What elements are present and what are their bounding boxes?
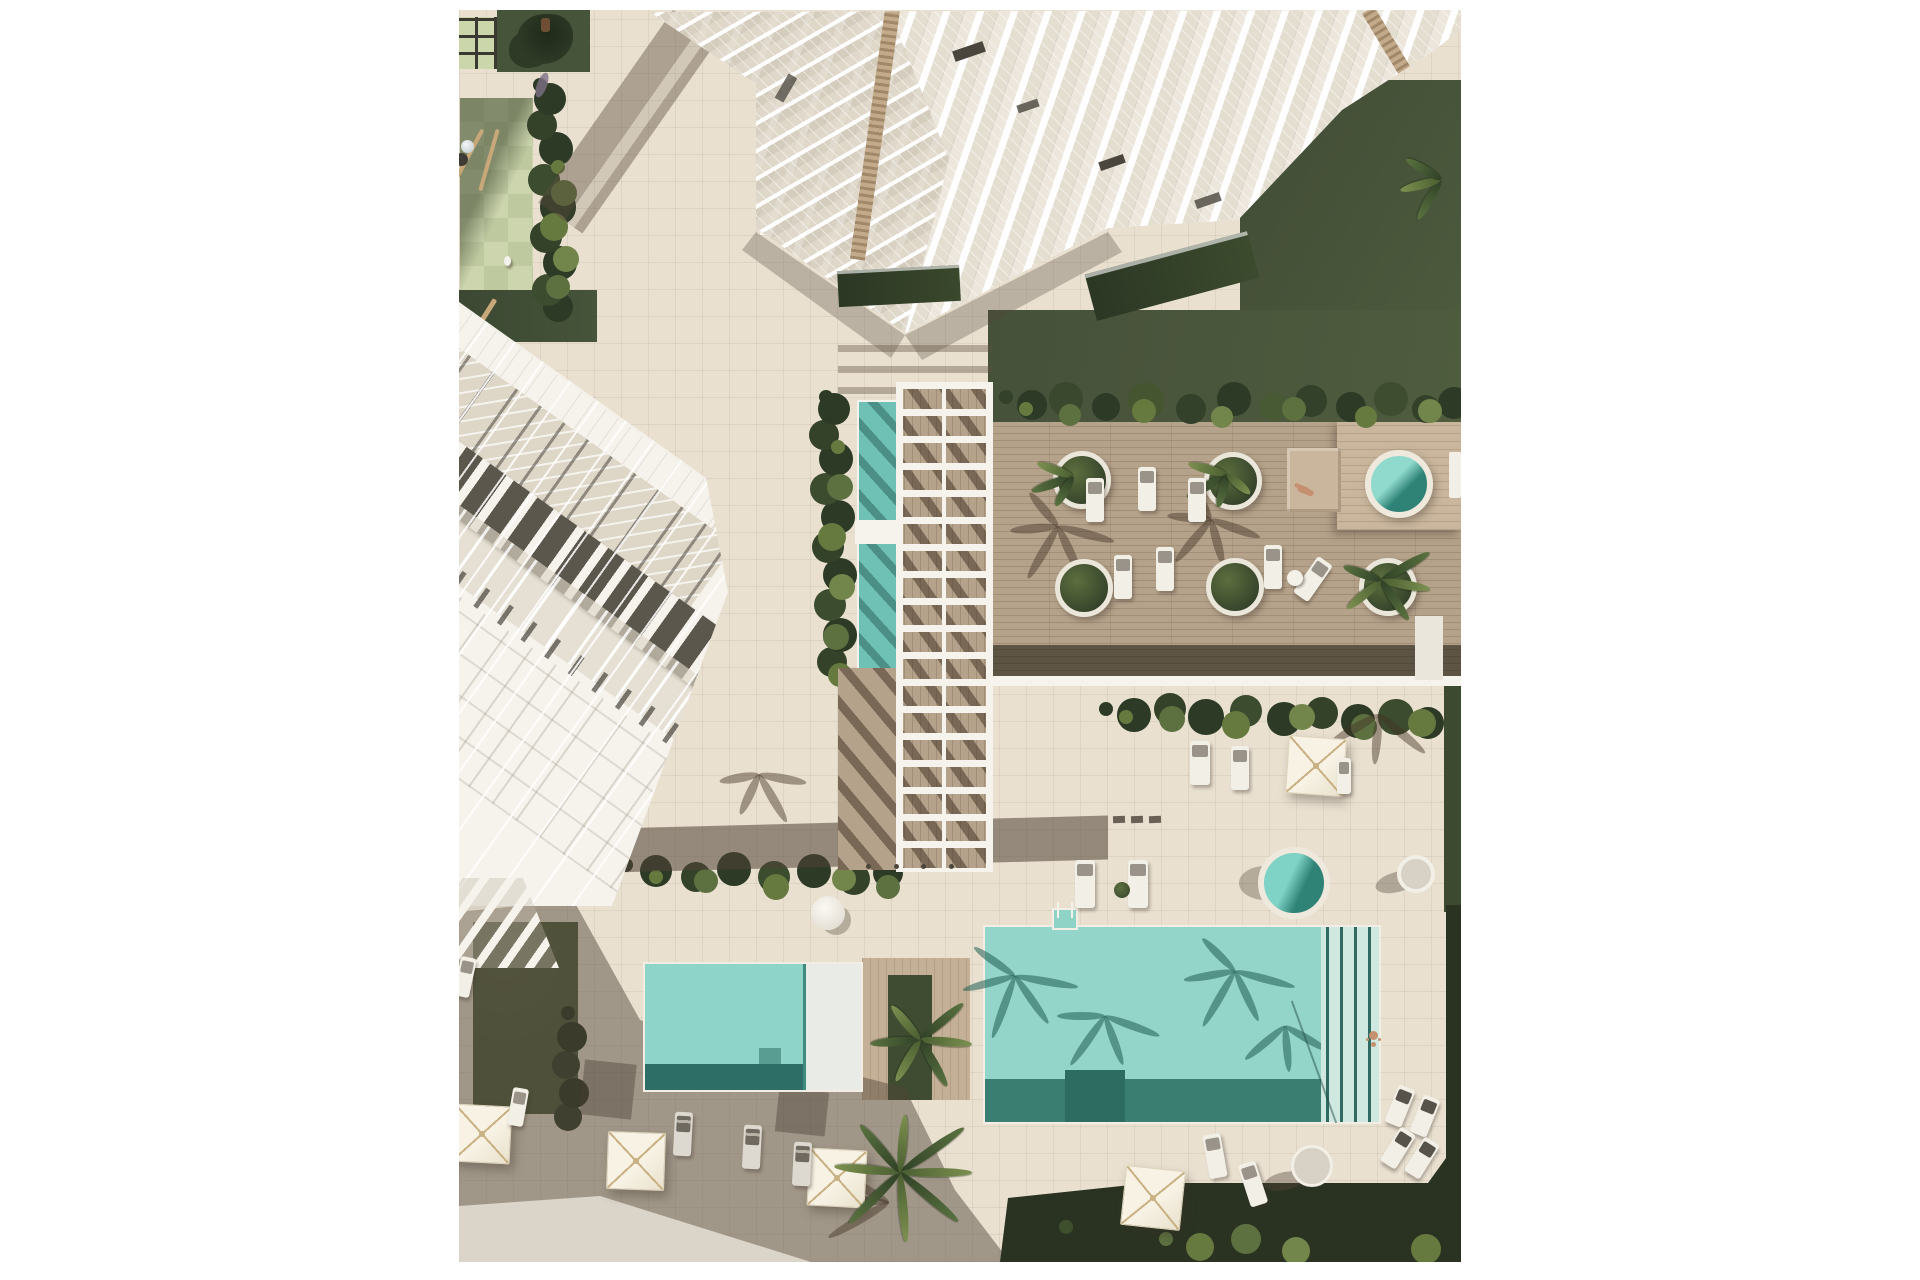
planter-3 <box>1055 559 1113 617</box>
egg-chair <box>1397 855 1435 893</box>
pool-lane-shelf <box>1321 927 1379 1122</box>
deck-side-table <box>1287 570 1303 586</box>
deck-shade-band <box>988 645 1461 678</box>
bottom-lounger-1 <box>673 1112 693 1157</box>
lap-pool-bridge <box>855 520 900 544</box>
tower-planter-bed-1 <box>837 265 961 307</box>
planter-4 <box>1206 558 1264 616</box>
lawn-hedge-leaves <box>1019 402 1033 416</box>
deck-lounger-3 <box>1188 478 1206 522</box>
playground-tree-trunk <box>541 18 550 32</box>
plant-band-monstera <box>1159 1232 1173 1246</box>
round-table <box>811 896 845 930</box>
plant-band-leaves <box>1059 1220 1073 1234</box>
umbrella-bottom-1 <box>606 1131 666 1191</box>
hedge-midstrip-row <box>1099 702 1113 716</box>
deck-lounger-4 <box>1114 555 1132 599</box>
pergola-wood-strip <box>838 668 896 870</box>
mid-lounger-3 <box>1337 758 1351 794</box>
bottom-lounger-2 <box>742 1125 762 1170</box>
lane-line-2 <box>1340 927 1343 1122</box>
poolside-lounger-1 <box>1075 860 1095 908</box>
deck-lounger-2 <box>1138 467 1156 511</box>
poolside-plant <box>1114 882 1130 898</box>
spa-steps <box>1287 448 1341 512</box>
path-bollard-4 <box>949 864 954 869</box>
path-bollard-3 <box>921 864 926 869</box>
umbrella-bottom-3 <box>1120 1165 1186 1231</box>
path-bollard-2 <box>894 864 899 869</box>
swimmer <box>1369 1031 1378 1040</box>
hedge-lappool-leaves <box>831 440 845 454</box>
deck-lounger-6 <box>1264 545 1282 589</box>
toy-figure <box>504 256 511 266</box>
lawn-hedge-row <box>999 390 1013 404</box>
townhouse-fins <box>459 302 749 916</box>
kids-pool <box>643 962 863 1092</box>
step-stone-2 <box>1131 816 1143 823</box>
deck-lounger-1 <box>1086 478 1104 522</box>
corner-lounger-2 <box>1409 1094 1441 1138</box>
lawn-deck-band <box>988 310 1461 422</box>
deck-white-path <box>1415 616 1443 680</box>
site-plan-scene <box>459 10 1461 1262</box>
main-pool <box>983 925 1381 1124</box>
umbrella-shadow-2 <box>775 1088 829 1137</box>
playground-pavilion <box>459 17 502 69</box>
round-chair <box>1291 1145 1333 1187</box>
deck-spa <box>1365 450 1433 518</box>
pergola-rail-right <box>986 382 993 872</box>
pergola-rail-center <box>942 382 946 872</box>
play-dome <box>461 140 474 153</box>
pergola-rail-left <box>896 382 903 872</box>
lane-line-4 <box>1368 927 1371 1122</box>
lane-line-3 <box>1354 927 1357 1122</box>
bottom-lounger-4 <box>1202 1133 1227 1179</box>
mid-lounger-2 <box>1231 746 1249 790</box>
grass-strip-right <box>1444 686 1461 912</box>
pool-steps-block <box>1065 1070 1125 1122</box>
bottom-lounger-3 <box>792 1142 812 1187</box>
pergola <box>896 382 993 872</box>
hedge-building-leaves <box>649 870 663 884</box>
mid-lounger-1 <box>1190 741 1210 785</box>
umbrella-shadow-1 <box>579 1059 636 1119</box>
hedge-plume <box>533 71 551 99</box>
umbrella-bottom-2 <box>807 1148 868 1209</box>
deck-edge-lounger <box>1449 452 1461 498</box>
pool-ladder <box>1057 902 1073 918</box>
umbrella-grass <box>459 1104 512 1165</box>
deck-lounger-5 <box>1156 547 1174 591</box>
step-stone-3 <box>1149 816 1161 823</box>
pool-deep-band <box>985 1079 1321 1122</box>
render-canvas <box>0 0 1920 1280</box>
hedge-midstrip-leaves <box>1119 710 1133 724</box>
poolside-lounger-2 <box>1128 860 1148 908</box>
corner-lounger-1 <box>1384 1084 1416 1128</box>
path-bollard-1 <box>866 864 871 869</box>
step-stone-1 <box>1113 816 1125 823</box>
townhouse-building <box>459 302 749 916</box>
hedge-lappool-strip <box>819 390 833 404</box>
kids-pool-shelf <box>803 964 861 1090</box>
kids-pool-deep-band <box>645 1064 803 1090</box>
deck-edge-slab <box>988 676 1461 686</box>
kids-pool-step <box>759 1048 781 1066</box>
jacuzzi <box>1258 847 1330 919</box>
